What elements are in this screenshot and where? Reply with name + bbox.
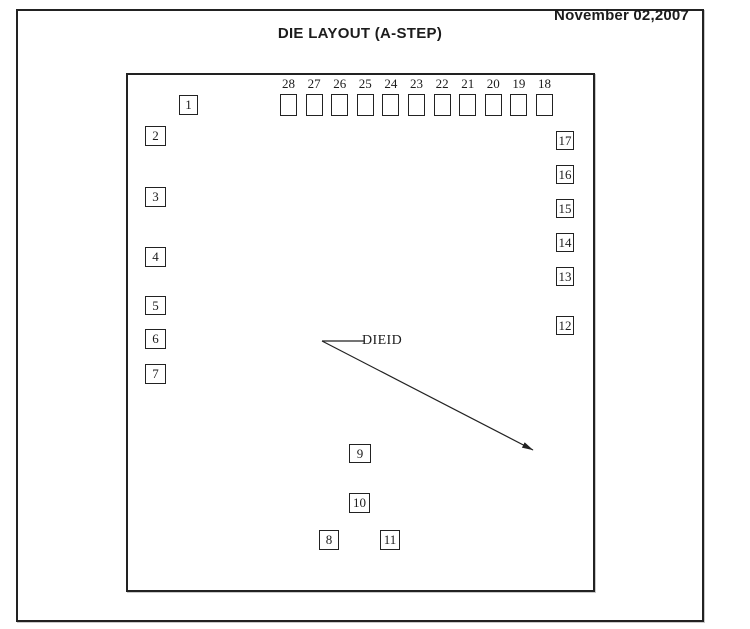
top-pad-label-26: 26 — [326, 77, 354, 91]
pad-15: 15 — [556, 199, 574, 218]
top-pad-19 — [510, 94, 527, 116]
top-pad-28 — [280, 94, 297, 116]
top-pad-20 — [485, 94, 502, 116]
pad-12: 12 — [556, 316, 574, 335]
top-pad-label-25: 25 — [351, 77, 379, 91]
pad-11: 11 — [380, 530, 400, 550]
top-pad-22 — [434, 94, 451, 116]
pad-13: 13 — [556, 267, 574, 286]
top-pad-18 — [536, 94, 553, 116]
top-pad-26 — [331, 94, 348, 116]
pad-4: 4 — [145, 247, 166, 267]
top-pad-label-21: 21 — [454, 77, 482, 91]
top-pad-24 — [382, 94, 399, 116]
top-pad-label-18: 18 — [531, 77, 559, 91]
dieid-label: DIEID — [362, 334, 402, 348]
top-pad-label-27: 27 — [300, 77, 328, 91]
pad-1: 1 — [179, 95, 198, 115]
top-pad-label-19: 19 — [505, 77, 533, 91]
pad-17: 17 — [556, 131, 574, 150]
top-pad-label-28: 28 — [275, 77, 303, 91]
pad-7: 7 — [145, 364, 166, 384]
date-label: November 02,2007 — [554, 7, 689, 24]
pad-5: 5 — [145, 296, 166, 315]
top-pad-label-23: 23 — [403, 77, 431, 91]
top-pad-27 — [306, 94, 323, 116]
pad-3: 3 — [145, 187, 166, 207]
top-pad-21 — [459, 94, 476, 116]
top-pad-23 — [408, 94, 425, 116]
pad-10: 10 — [349, 493, 370, 513]
pad-14: 14 — [556, 233, 574, 252]
top-pad-25 — [357, 94, 374, 116]
pad-2: 2 — [145, 126, 166, 146]
top-pad-label-24: 24 — [377, 77, 405, 91]
die-outline — [126, 73, 595, 592]
pad-16: 16 — [556, 165, 574, 184]
pad-8: 8 — [319, 530, 339, 550]
page: November 02,2007 DIE LAYOUT (A-STEP) DIE… — [0, 0, 750, 629]
top-pad-label-20: 20 — [479, 77, 507, 91]
pad-9: 9 — [349, 444, 371, 463]
pad-6: 6 — [145, 329, 166, 349]
page-title: DIE LAYOUT (A-STEP) — [16, 25, 704, 42]
top-pad-label-22: 22 — [428, 77, 456, 91]
